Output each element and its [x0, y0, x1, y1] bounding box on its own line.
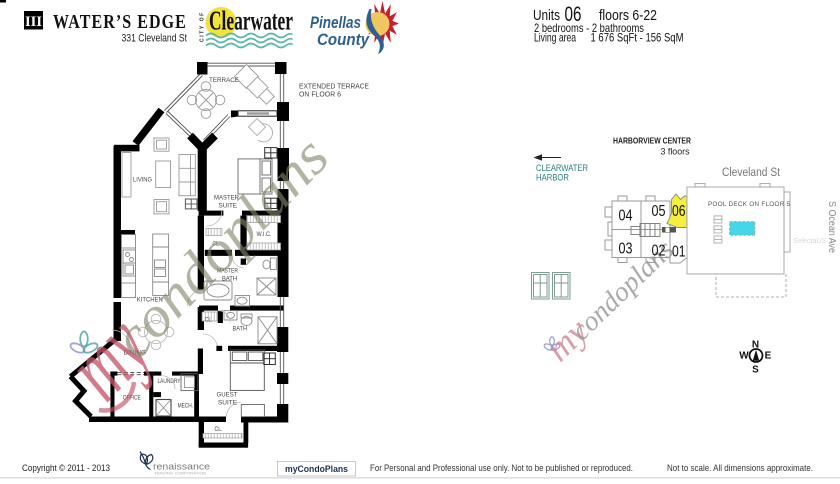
svg-text:HARBOR: HARBOR	[536, 173, 569, 183]
svg-text:TERRACE: TERRACE	[209, 77, 239, 84]
svg-text:BATH: BATH	[233, 326, 248, 333]
svg-text:CLEARWATER: CLEARWATER	[536, 163, 588, 173]
svg-text:myCondoPlans: myCondoPlans	[285, 464, 348, 474]
svg-text:County: County	[317, 31, 370, 49]
svg-text:SelectaUS: SelectaUS	[793, 238, 826, 245]
svg-text:Clearwater: Clearwater	[209, 6, 293, 36]
svg-text:SUITE: SUITE	[218, 400, 237, 407]
svg-text:01: 01	[672, 244, 686, 261]
svg-text:Pinellas: Pinellas	[310, 14, 361, 32]
svg-text:Cleveland St: Cleveland St	[722, 167, 781, 179]
svg-text:CITY OF: CITY OF	[200, 11, 206, 42]
svg-text:Copyright © 2011 - 2013: Copyright © 2011 - 2013	[22, 463, 110, 473]
svg-text:HARBORVIEW CENTER: HARBORVIEW CENTER	[613, 136, 691, 146]
svg-text:POOL DECK ON FLOOR 5: POOL DECK ON FLOOR 5	[708, 201, 791, 208]
svg-text:1 676 SqFt - 156 SqM: 1 676 SqFt - 156 SqM	[591, 31, 684, 45]
svg-text:ON FLOOR 6: ON FLOOR 6	[299, 89, 341, 98]
svg-text:06: 06	[672, 203, 686, 220]
svg-text:GUEST: GUEST	[217, 392, 238, 399]
svg-text:LAUNDRY: LAUNDRY	[158, 378, 181, 385]
svg-text:N: N	[752, 340, 759, 351]
svg-text:TRADING CORPORATION: TRADING CORPORATION	[154, 471, 206, 476]
svg-text:E: E	[765, 351, 772, 362]
svg-text:WATER’S EDGE: WATER’S EDGE	[53, 11, 186, 33]
svg-text:Living area: Living area	[534, 31, 576, 45]
svg-text:For Personal and Professional: For Personal and Professional use only. …	[370, 463, 633, 473]
svg-text:S Ocean Ave: S Ocean Ave	[826, 201, 838, 253]
svg-text:03: 03	[619, 241, 633, 258]
svg-text:W: W	[739, 351, 749, 362]
svg-text:Not to scale. All dimensions: Not to scale. All dimensions approximate…	[667, 463, 813, 473]
svg-text:S: S	[752, 365, 759, 376]
svg-text:331 Cleveland St: 331 Cleveland St	[122, 33, 188, 45]
svg-text:CL.: CL.	[215, 426, 223, 433]
svg-text:02: 02	[652, 243, 666, 260]
svg-text:MECH.: MECH.	[178, 402, 194, 409]
svg-text:III: III	[25, 14, 42, 30]
svg-text:3 floors: 3 floors	[661, 147, 690, 158]
svg-text:04: 04	[619, 208, 633, 225]
svg-text:LIVING: LIVING	[133, 177, 152, 184]
svg-text:CL.: CL.	[205, 317, 213, 324]
svg-text:05: 05	[652, 203, 666, 220]
